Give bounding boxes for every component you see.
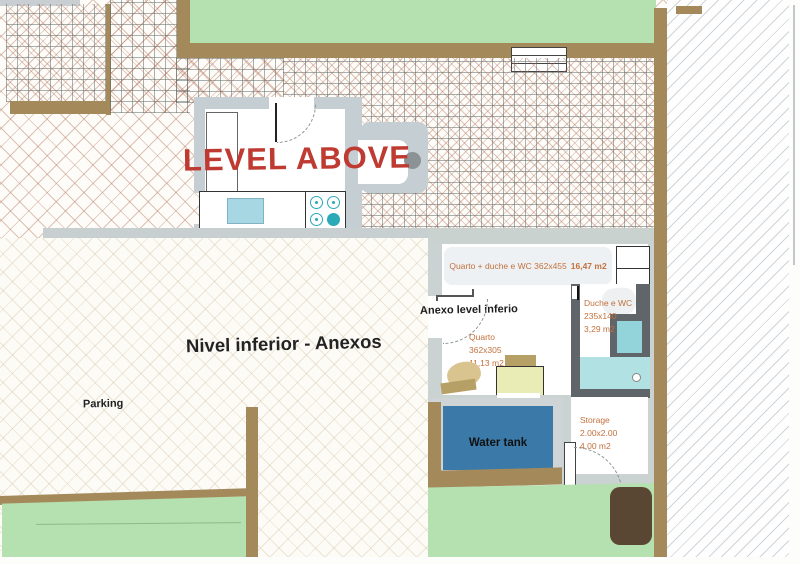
shower-left-wall [571,284,580,398]
page-bottom-margin [0,557,800,564]
shower-room-dims: 235x140 [584,310,632,323]
closet [616,246,650,270]
tile-grid-area-topleft [6,4,110,102]
wall-center-vertical [246,407,258,558]
level-above-title: LEVEL ABOVE [183,139,412,178]
wall-garden-bottom [177,43,656,58]
shower-room-name: Duche e WC [584,297,632,310]
storage-dims: 2.00x2.00 [580,427,617,440]
floor-plan-page: LEVEL ABOVE Nivel inferior - Anexos Park… [0,0,800,564]
anexo-leader-tick [436,295,438,301]
bedroom-dims: 362x305 [469,344,504,357]
annex-top-wall [428,228,656,244]
water-tank-label: Water tank [443,406,553,449]
wall-tank-bottom [435,467,567,487]
suite-room-name: Quarto + duche e WC 362x455 [449,260,566,273]
boundary-wall-right [654,8,667,558]
garden-strip-top [190,0,656,44]
bedroom-name: Quarto [469,331,504,344]
wall-topleft-bottom [10,101,111,114]
storage-name: Storage [580,414,617,427]
lower-level-title: Nivel inferior - Anexos [186,331,382,357]
annex-door-opening [428,296,442,338]
shower-drain-icon [632,373,641,382]
storage-label: Storage 2.00x2.00 4.00 m2 [580,414,617,453]
stove-burner-icon [327,196,340,209]
anexo-leader-tick [472,289,474,296]
kitchen-stove [305,191,346,231]
page-edge-shadow [793,5,795,265]
shower-room-label: Duche e WC 235x140 3,29 m2 [584,297,632,336]
stove-burner-icon [310,196,323,209]
boundary-wall-stub [676,6,702,14]
gate [610,487,652,545]
shower-room-area: 3,29 m2 [584,323,632,336]
anexo-leader-line [436,295,474,297]
grass-bottom-left [2,495,247,557]
water-tank: Water tank [443,406,553,470]
parking-label: Parking [83,398,124,411]
outside-hatch-margin [667,0,790,564]
suite-room-label: Quarto + duche e WC 362x455 16,47 m2 [444,247,612,285]
suite-room-area: 16,47 m2 [571,260,607,273]
kitchen-sink [227,198,264,224]
stove-burner-icon [327,213,340,226]
stove-burner-icon [310,213,323,226]
door-leaf [577,286,579,300]
